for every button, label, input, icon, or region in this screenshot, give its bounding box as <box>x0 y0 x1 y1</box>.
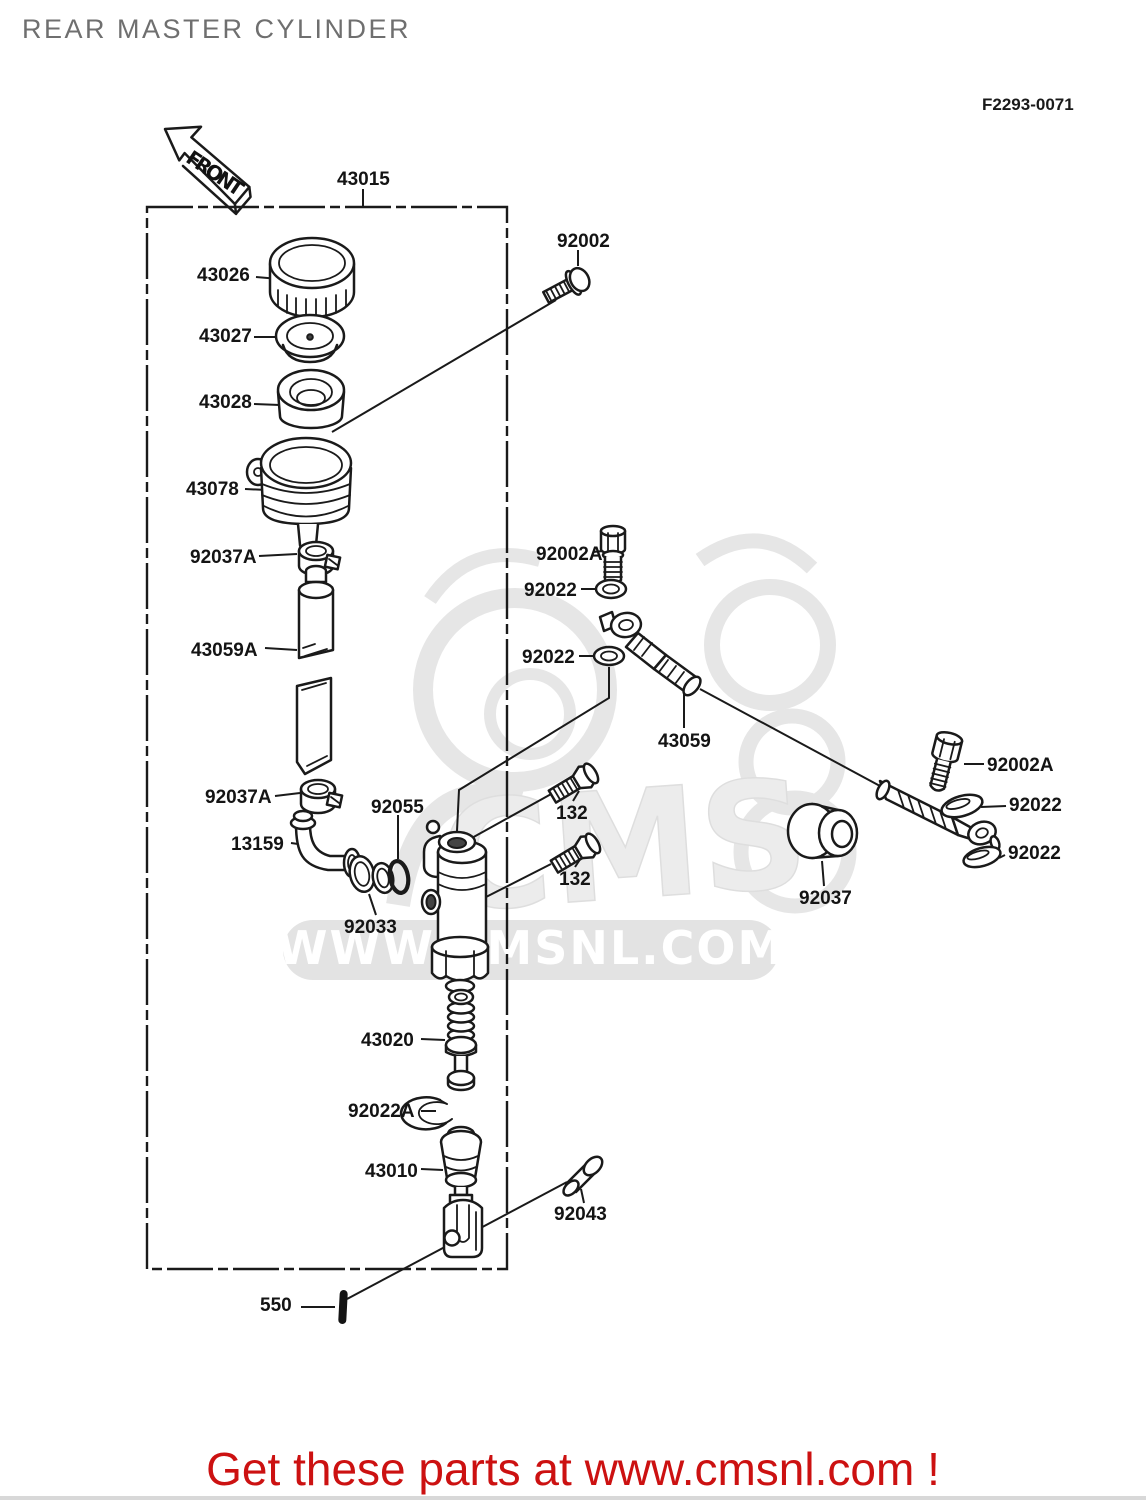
page-title: REAR MASTER CYLINDER <box>22 14 411 45</box>
part-label-92022a: 92022A <box>348 1101 415 1123</box>
watermark-logo-text: CMS <box>435 748 814 947</box>
part-label-92022-right-lower: 92022 <box>1008 843 1061 865</box>
front-arrow: FRONT <box>146 112 269 216</box>
part-label-43026: 43026 <box>197 265 250 287</box>
drawing-piston-43020 <box>446 990 476 1090</box>
part-label-92002a-right: 92002A <box>987 755 1054 777</box>
part-label-43015: 43015 <box>337 169 390 191</box>
part-label-43010: 43010 <box>365 1161 418 1183</box>
part-label-43059: 43059 <box>658 731 711 753</box>
part-label-92037: 92037 <box>799 888 852 910</box>
part-label-132-upper: 132 <box>556 803 588 825</box>
drawing-grommet-92037 <box>788 804 857 858</box>
drawing-washer-92022-left-lower <box>594 647 624 665</box>
cmsnl-watermark: CMS WWW.CMSNL.COM <box>277 541 849 980</box>
drawing-screw-92002 <box>540 264 594 309</box>
part-label-43059a: 43059A <box>191 640 258 662</box>
drawing-master-cylinder-body <box>422 821 488 992</box>
part-label-92002a-left: 92002A <box>536 544 603 566</box>
drawing-banjo-bolt-92002a-right <box>924 730 964 794</box>
drawing-boot-43010 <box>441 1127 481 1204</box>
diagram-code: F2293-0071 <box>982 95 1074 115</box>
drawing-hose-43059a <box>297 566 333 774</box>
part-label-92033: 92033 <box>344 917 397 939</box>
drawing-cup-43028 <box>278 370 344 428</box>
part-label-43078: 43078 <box>186 479 239 501</box>
part-label-43027: 43027 <box>199 326 252 348</box>
part-label-92037a-top: 92037A <box>190 547 257 569</box>
part-label-132-lower: 132 <box>559 869 591 891</box>
drawing-washer-92022-right-upper <box>939 791 985 822</box>
cmsnl-footer-text: Get these parts at www.cmsnl.com ! <box>0 1442 1146 1496</box>
drawing-cap-43026 <box>270 238 354 317</box>
drawing-clevis-joint <box>444 1200 482 1257</box>
part-label-43020: 43020 <box>361 1030 414 1052</box>
part-label-550: 550 <box>260 1295 292 1317</box>
drawing-washer-92022-left-upper <box>596 580 626 598</box>
drawing-plate-43027 <box>276 315 344 362</box>
drawing-washer-92022-right-lower <box>961 843 1002 871</box>
part-label-92022-left-upper: 92022 <box>524 580 577 602</box>
part-label-92022-right-upper: 92022 <box>1009 795 1062 817</box>
part-label-92043: 92043 <box>554 1204 607 1226</box>
leader-lines <box>245 189 1006 1307</box>
part-label-43028: 43028 <box>199 392 252 414</box>
parts-diagram-page: REAR MASTER CYLINDER F2293-0071 CMS WWW.… <box>0 0 1146 1500</box>
part-label-92002: 92002 <box>557 231 610 253</box>
drawing-banjo-bolt-92002a-left <box>601 526 625 584</box>
diagram-canvas: CMS WWW.CMSNL.COM FRONT <box>0 0 1146 1500</box>
part-label-92022-left-lower: 92022 <box>522 647 575 669</box>
drawing-pin-92043 <box>561 1153 606 1198</box>
part-label-92055: 92055 <box>371 797 424 819</box>
drawing-clamp-92037a-bottom <box>301 780 342 813</box>
drawing-reservoir-43078 <box>247 438 351 549</box>
part-label-13159: 13159 <box>231 834 284 856</box>
part-label-92037a-bottom: 92037A <box>205 787 272 809</box>
bottom-edge-strip <box>0 1496 1146 1500</box>
drawing-cotter-pin-550 <box>338 1290 348 1324</box>
